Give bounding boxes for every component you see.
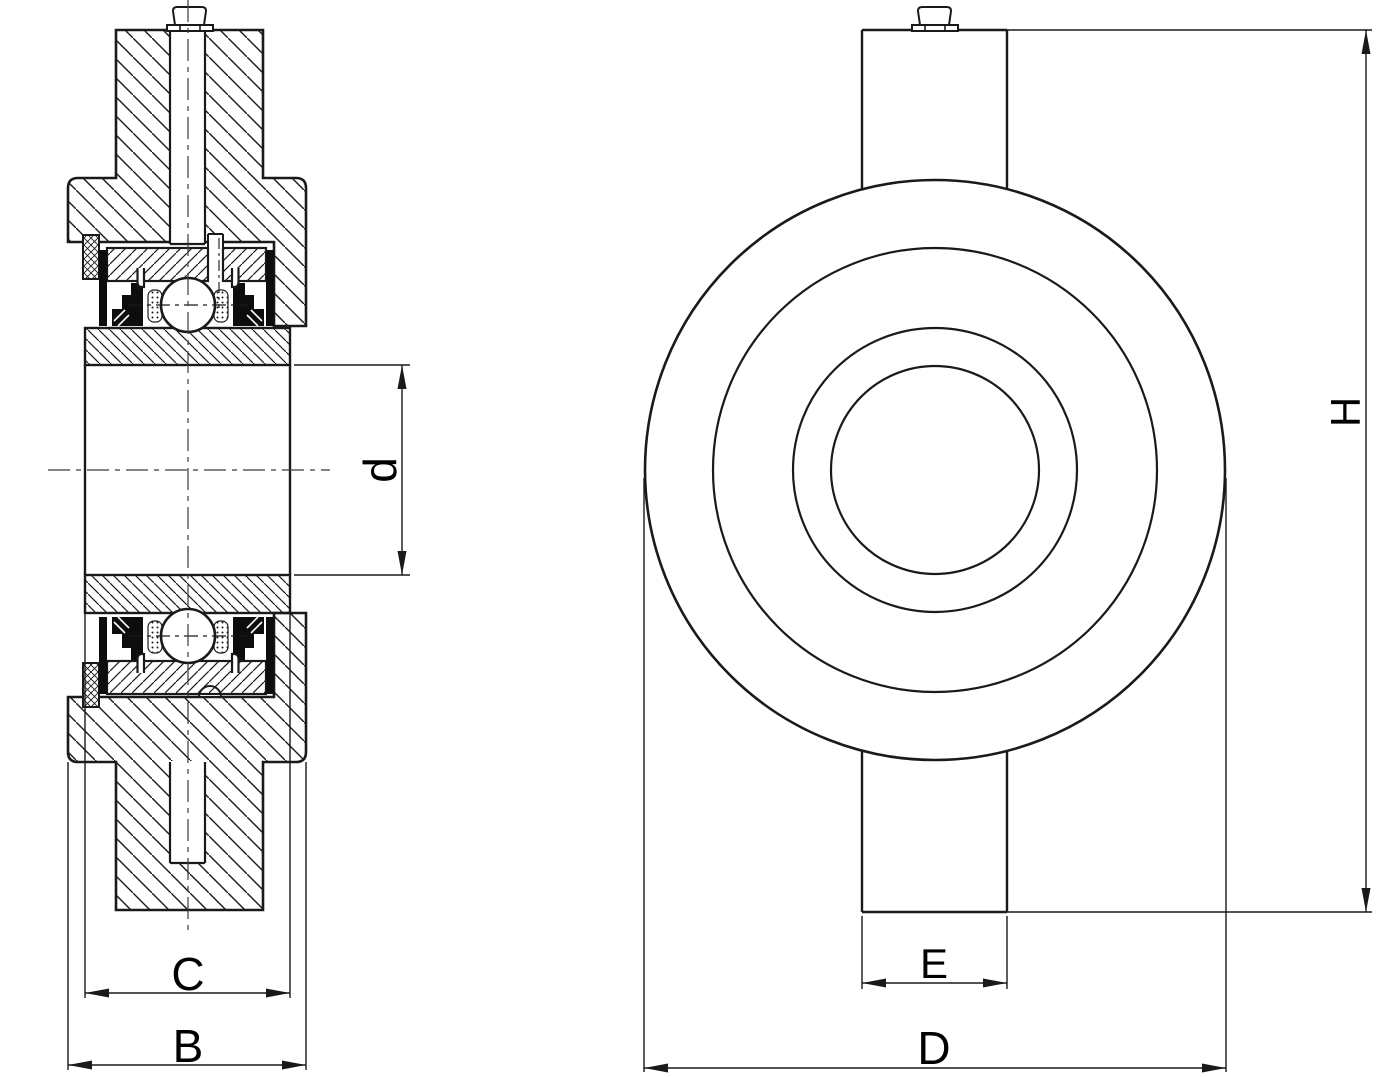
label-D: D: [917, 1022, 950, 1074]
arrow-H-top: [1362, 30, 1371, 54]
grease-nipple-section: [167, 7, 213, 31]
label-B: B: [173, 1020, 204, 1072]
arrow-D-left: [644, 1064, 668, 1073]
arrow-E-right: [983, 979, 1007, 988]
arrow-d-bottom: [398, 551, 407, 575]
arrow-D-right: [1202, 1064, 1226, 1073]
seal-boot-upper-right: [233, 283, 264, 326]
outer-ring-upper-left: [107, 248, 208, 281]
seal-band-lower-left: [99, 617, 107, 694]
seal-hook-upper-left: [138, 268, 145, 287]
label-H: H: [1322, 397, 1369, 427]
arrow-B-left: [68, 1061, 92, 1070]
seal-band-upper-left: [99, 250, 107, 326]
grease-nipple-front: [912, 7, 958, 31]
drawing-canvas: C B d E D H: [0, 0, 1393, 1077]
section-view: [48, 0, 330, 935]
arrow-B-right: [282, 1061, 306, 1070]
seal-band-lower-right: [266, 617, 274, 694]
label-E: E: [920, 940, 948, 987]
label-d: d: [354, 457, 406, 483]
arrow-C-right: [266, 989, 290, 998]
shaft-bore-circle: [831, 366, 1039, 574]
seal-hook-lower-right: [232, 654, 239, 673]
outer-ring-lower: [107, 661, 266, 694]
bearing-drawing: C B d E D H: [0, 0, 1393, 1077]
arrow-H-bottom: [1362, 888, 1371, 912]
seal-hook-upper-right: [232, 268, 239, 287]
dim-labels: C B d E D H: [171, 397, 1369, 1074]
arrow-E-left: [862, 979, 886, 988]
seal-boot-lower-right: [233, 617, 264, 660]
rubber-ring-upper: [83, 235, 99, 279]
ext-lines-H: [1007, 30, 1372, 912]
front-view: [645, 7, 1225, 912]
column-edges: [862, 30, 1007, 912]
outer-ring-upper-right: [223, 248, 266, 281]
label-C: C: [171, 948, 204, 1000]
seal-band-upper-right: [266, 250, 274, 326]
arrow-d-top: [398, 365, 407, 389]
seal-circle: [793, 328, 1077, 612]
seal-boot-lower-left: [112, 617, 143, 660]
seal-hook-lower-left: [138, 654, 145, 673]
grease-passage-fill: [209, 234, 223, 280]
housing-outer-circle: [645, 180, 1225, 760]
housing-bore-circle: [713, 248, 1157, 692]
arrow-C-left: [85, 989, 109, 998]
